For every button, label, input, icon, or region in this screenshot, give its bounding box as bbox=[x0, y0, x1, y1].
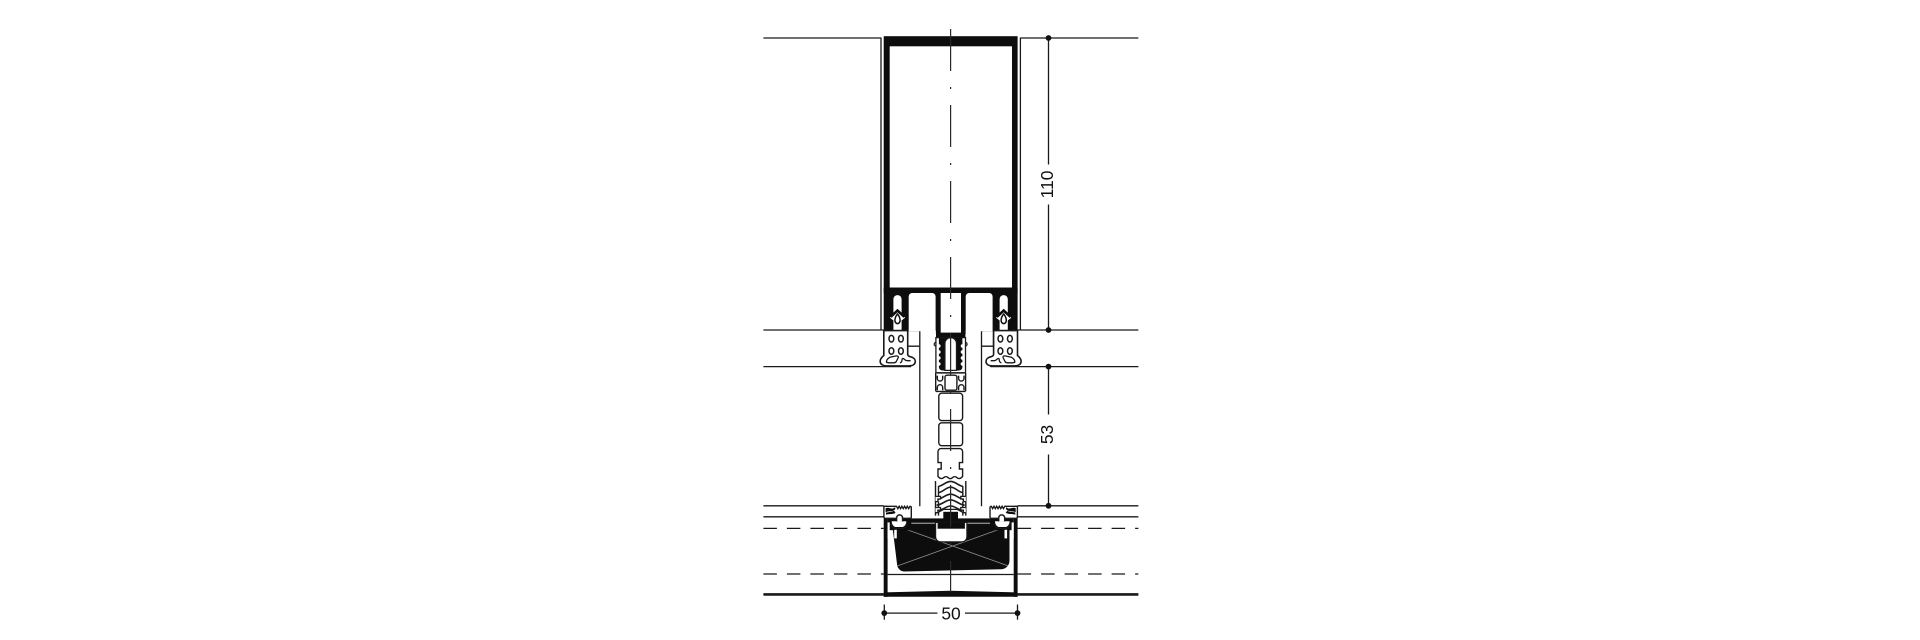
svg-text:50: 50 bbox=[941, 603, 960, 623]
svg-text:53: 53 bbox=[1037, 425, 1057, 444]
svg-text:110: 110 bbox=[1037, 171, 1057, 199]
